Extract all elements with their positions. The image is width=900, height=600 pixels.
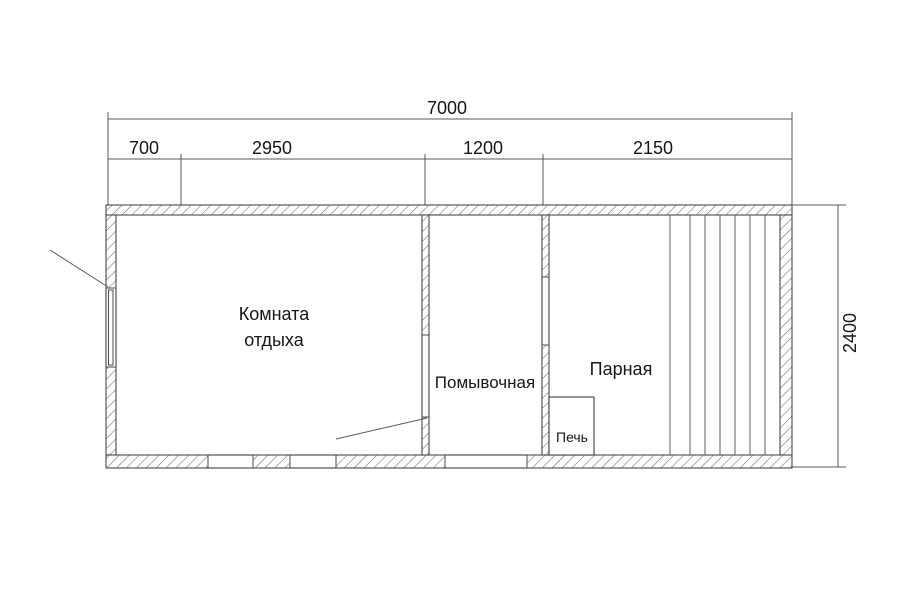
dimension-label-total: 7000 xyxy=(427,98,467,118)
steam-room-bench-slats xyxy=(670,215,765,455)
left-window xyxy=(109,290,114,365)
room-label-rest-line1: Комната xyxy=(239,304,310,324)
top-wall-hatch xyxy=(106,205,792,215)
top-dimensions: 7000 700 2950 1200 2150 xyxy=(108,98,792,205)
dimension-label-1200: 1200 xyxy=(463,138,503,158)
dimension-label-2950: 2950 xyxy=(252,138,292,158)
room-label-rest-line2: отдыха xyxy=(244,330,305,350)
right-dimension: 2400 xyxy=(792,205,860,467)
right-wall-hatch xyxy=(780,215,792,455)
partition-rest-washing-hatch-lower xyxy=(422,417,429,455)
dimension-label-height: 2400 xyxy=(840,313,860,353)
leader-line-window xyxy=(50,250,108,287)
dimension-label-2150: 2150 xyxy=(633,138,673,158)
partition-rest-washing-hatch-upper xyxy=(422,215,429,335)
bottom-wall-hatch-2 xyxy=(253,455,290,468)
room-label-stove: Печь xyxy=(556,429,588,445)
left-wall-hatch-lower xyxy=(106,367,116,455)
bottom-wall-hatch-1 xyxy=(106,455,208,468)
stove-box xyxy=(549,397,594,455)
partition-washing-steam-hatch-lower xyxy=(542,345,549,455)
dimension-label-700: 700 xyxy=(129,138,159,158)
exterior-walls xyxy=(106,205,792,468)
left-wall-hatch-upper xyxy=(106,215,116,288)
partition-washing-steam-hatch-upper xyxy=(542,215,549,277)
leader-line-door xyxy=(336,418,427,439)
room-label-washing: Помывочная xyxy=(435,373,535,392)
interior-partitions xyxy=(422,215,549,455)
bottom-wall-hatch-4 xyxy=(527,455,792,468)
floor-plan-canvas: 7000 700 2950 1200 2150 2400 xyxy=(0,0,900,600)
floor-plan-page: 7000 700 2950 1200 2150 2400 xyxy=(0,0,900,600)
bottom-wall-hatch-3 xyxy=(336,455,445,468)
room-label-steam: Парная xyxy=(590,359,653,379)
